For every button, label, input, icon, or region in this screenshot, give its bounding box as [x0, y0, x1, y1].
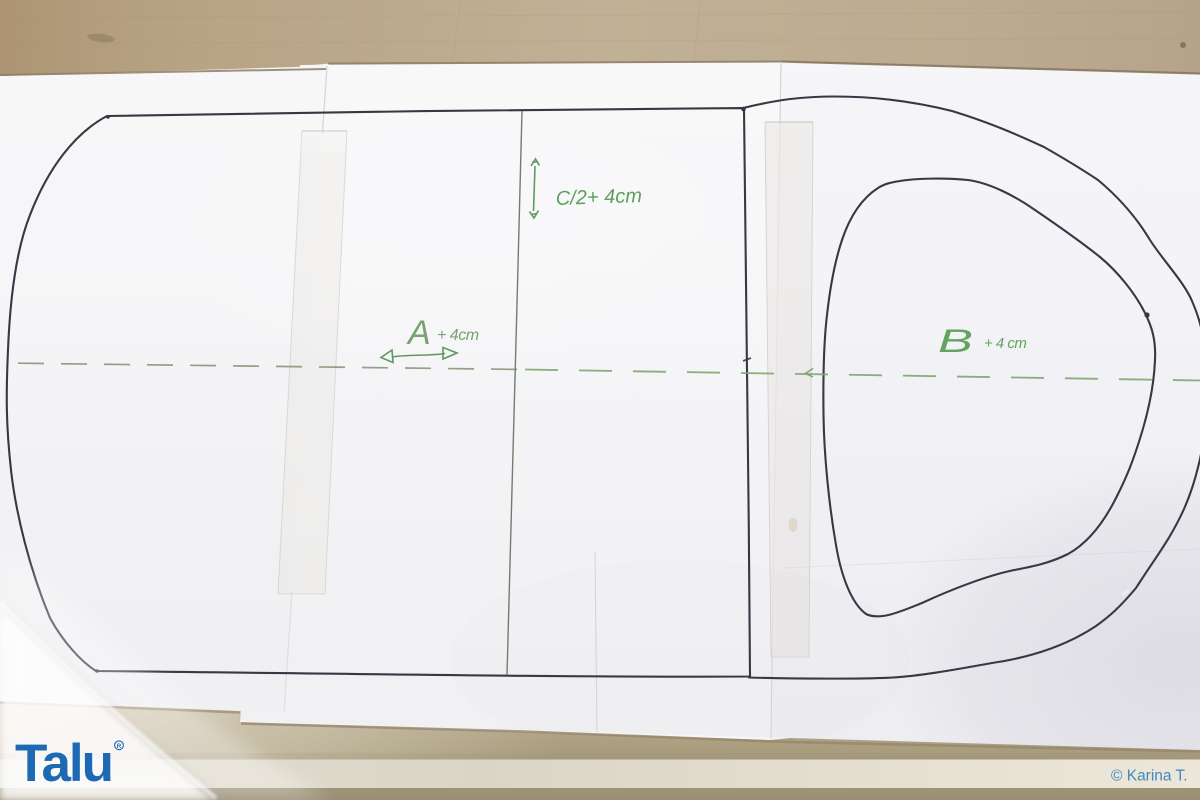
- svg-text:+ 4 cm: + 4 cm: [984, 335, 1026, 352]
- svg-text:B: B: [938, 323, 973, 359]
- svg-text:© Karina T.: © Karina T.: [1111, 768, 1188, 785]
- svg-text:C/2+ 4cm: C/2+ 4cm: [555, 185, 642, 210]
- svg-text:Talu: Talu: [15, 734, 112, 793]
- svg-text:A: A: [406, 314, 431, 352]
- svg-text:R: R: [117, 743, 122, 750]
- svg-text:+ 4cm: + 4cm: [437, 327, 479, 344]
